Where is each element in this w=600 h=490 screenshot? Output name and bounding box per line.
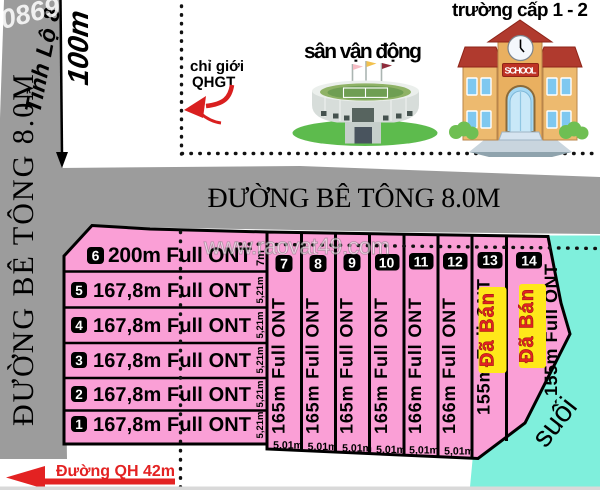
svg-text:167,8m Full ONT: 167,8m Full ONT (93, 350, 251, 372)
svg-text:Đường QH 42m: Đường QH 42m (56, 463, 175, 480)
svg-text:www.raovat49.com: www.raovat49.com (203, 233, 390, 259)
svg-text:5,01m: 5,01m (342, 443, 372, 455)
svg-text:5,01m: 5,01m (444, 446, 474, 458)
svg-text:5,21m: 5,21m (255, 312, 266, 339)
svg-text:167,8m Full ONT: 167,8m Full ONT (93, 280, 251, 302)
svg-text:SCHOOL: SCHOOL (505, 66, 538, 76)
svg-text:167,8m Full ONT: 167,8m Full ONT (93, 315, 251, 337)
svg-text:3: 3 (75, 353, 83, 368)
svg-text:Đã Bán: Đã Bán (516, 289, 538, 363)
svg-text:100m: 100m (63, 8, 95, 87)
svg-text:167,8m Full ONT: 167,8m Full ONT (93, 384, 251, 406)
svg-text:167,8m Full ONT: 167,8m Full ONT (93, 414, 251, 436)
svg-text:QHGT: QHGT (192, 74, 235, 91)
svg-text:5,01m: 5,01m (409, 445, 439, 457)
svg-text:ĐƯỜNG BÊ TÔNG 8.0M: ĐƯỜNG BÊ TÔNG 8.0M (7, 74, 40, 426)
svg-text:166m Full ONT: 166m Full ONT (405, 298, 425, 434)
svg-text:165m Full ONT: 165m Full ONT (371, 298, 391, 434)
svg-text:5,21m: 5,21m (255, 347, 266, 374)
svg-text:165m Full ONT: 165m Full ONT (303, 298, 323, 434)
svg-text:trường cấp 1 - 2: trường cấp 1 - 2 (452, 0, 588, 21)
svg-text:5,01m: 5,01m (273, 440, 303, 452)
svg-text:166m Full ONT: 166m Full ONT (439, 298, 459, 434)
svg-text:11: 11 (414, 254, 429, 270)
svg-text:5: 5 (75, 283, 83, 298)
svg-text:5,21m: 5,21m (255, 412, 266, 439)
svg-text:1: 1 (75, 417, 83, 432)
svg-text:5,01m: 5,01m (376, 444, 406, 456)
svg-text:13: 13 (482, 252, 498, 268)
svg-text:chỉ giới: chỉ giới (190, 58, 244, 75)
svg-text:165m Full ONT: 165m Full ONT (337, 298, 357, 434)
svg-text:2: 2 (75, 387, 83, 402)
svg-text:5,01m: 5,01m (308, 441, 338, 453)
svg-text:Đã Bán: Đã Bán (477, 293, 499, 367)
svg-text:5,21m: 5,21m (255, 277, 266, 304)
svg-text:6: 6 (92, 248, 100, 264)
svg-text:14: 14 (521, 253, 537, 269)
svg-text:5,21m: 5,21m (255, 381, 266, 408)
svg-text:165m Full ONT: 165m Full ONT (269, 298, 289, 434)
svg-text:12: 12 (447, 254, 463, 270)
svg-text:ĐƯỜNG BÊ TÔNG 8.0M: ĐƯỜNG BÊ TÔNG 8.0M (208, 182, 501, 214)
svg-text:sân vận động: sân vận động (304, 40, 422, 63)
svg-text:4: 4 (75, 318, 83, 333)
